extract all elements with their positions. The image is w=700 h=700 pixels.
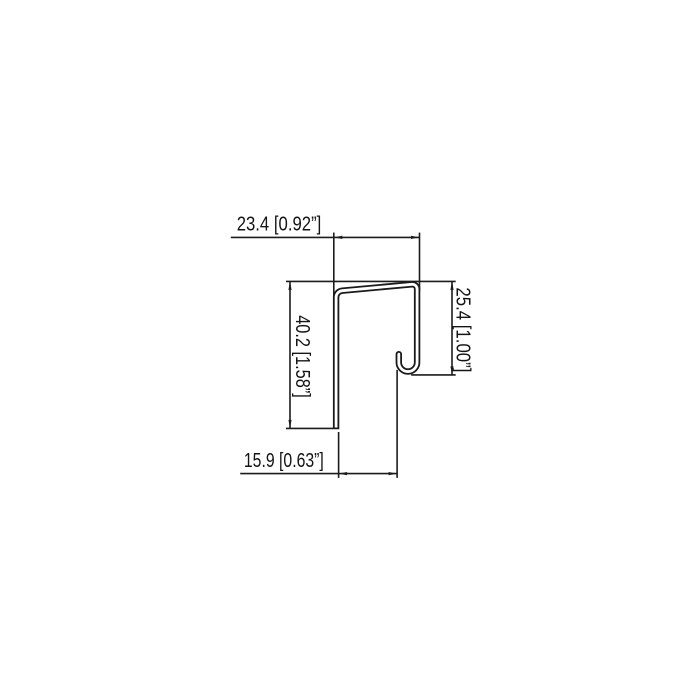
svg-text:25.4 [1.00”]: 25.4 [1.00”] xyxy=(451,287,473,372)
svg-text:40.2 [1.58”]: 40.2 [1.58”] xyxy=(291,315,313,398)
svg-text:15.9 [0.63”]: 15.9 [0.63”] xyxy=(244,450,324,472)
svg-text:23.4 [0.92”]: 23.4 [0.92”] xyxy=(237,213,322,235)
